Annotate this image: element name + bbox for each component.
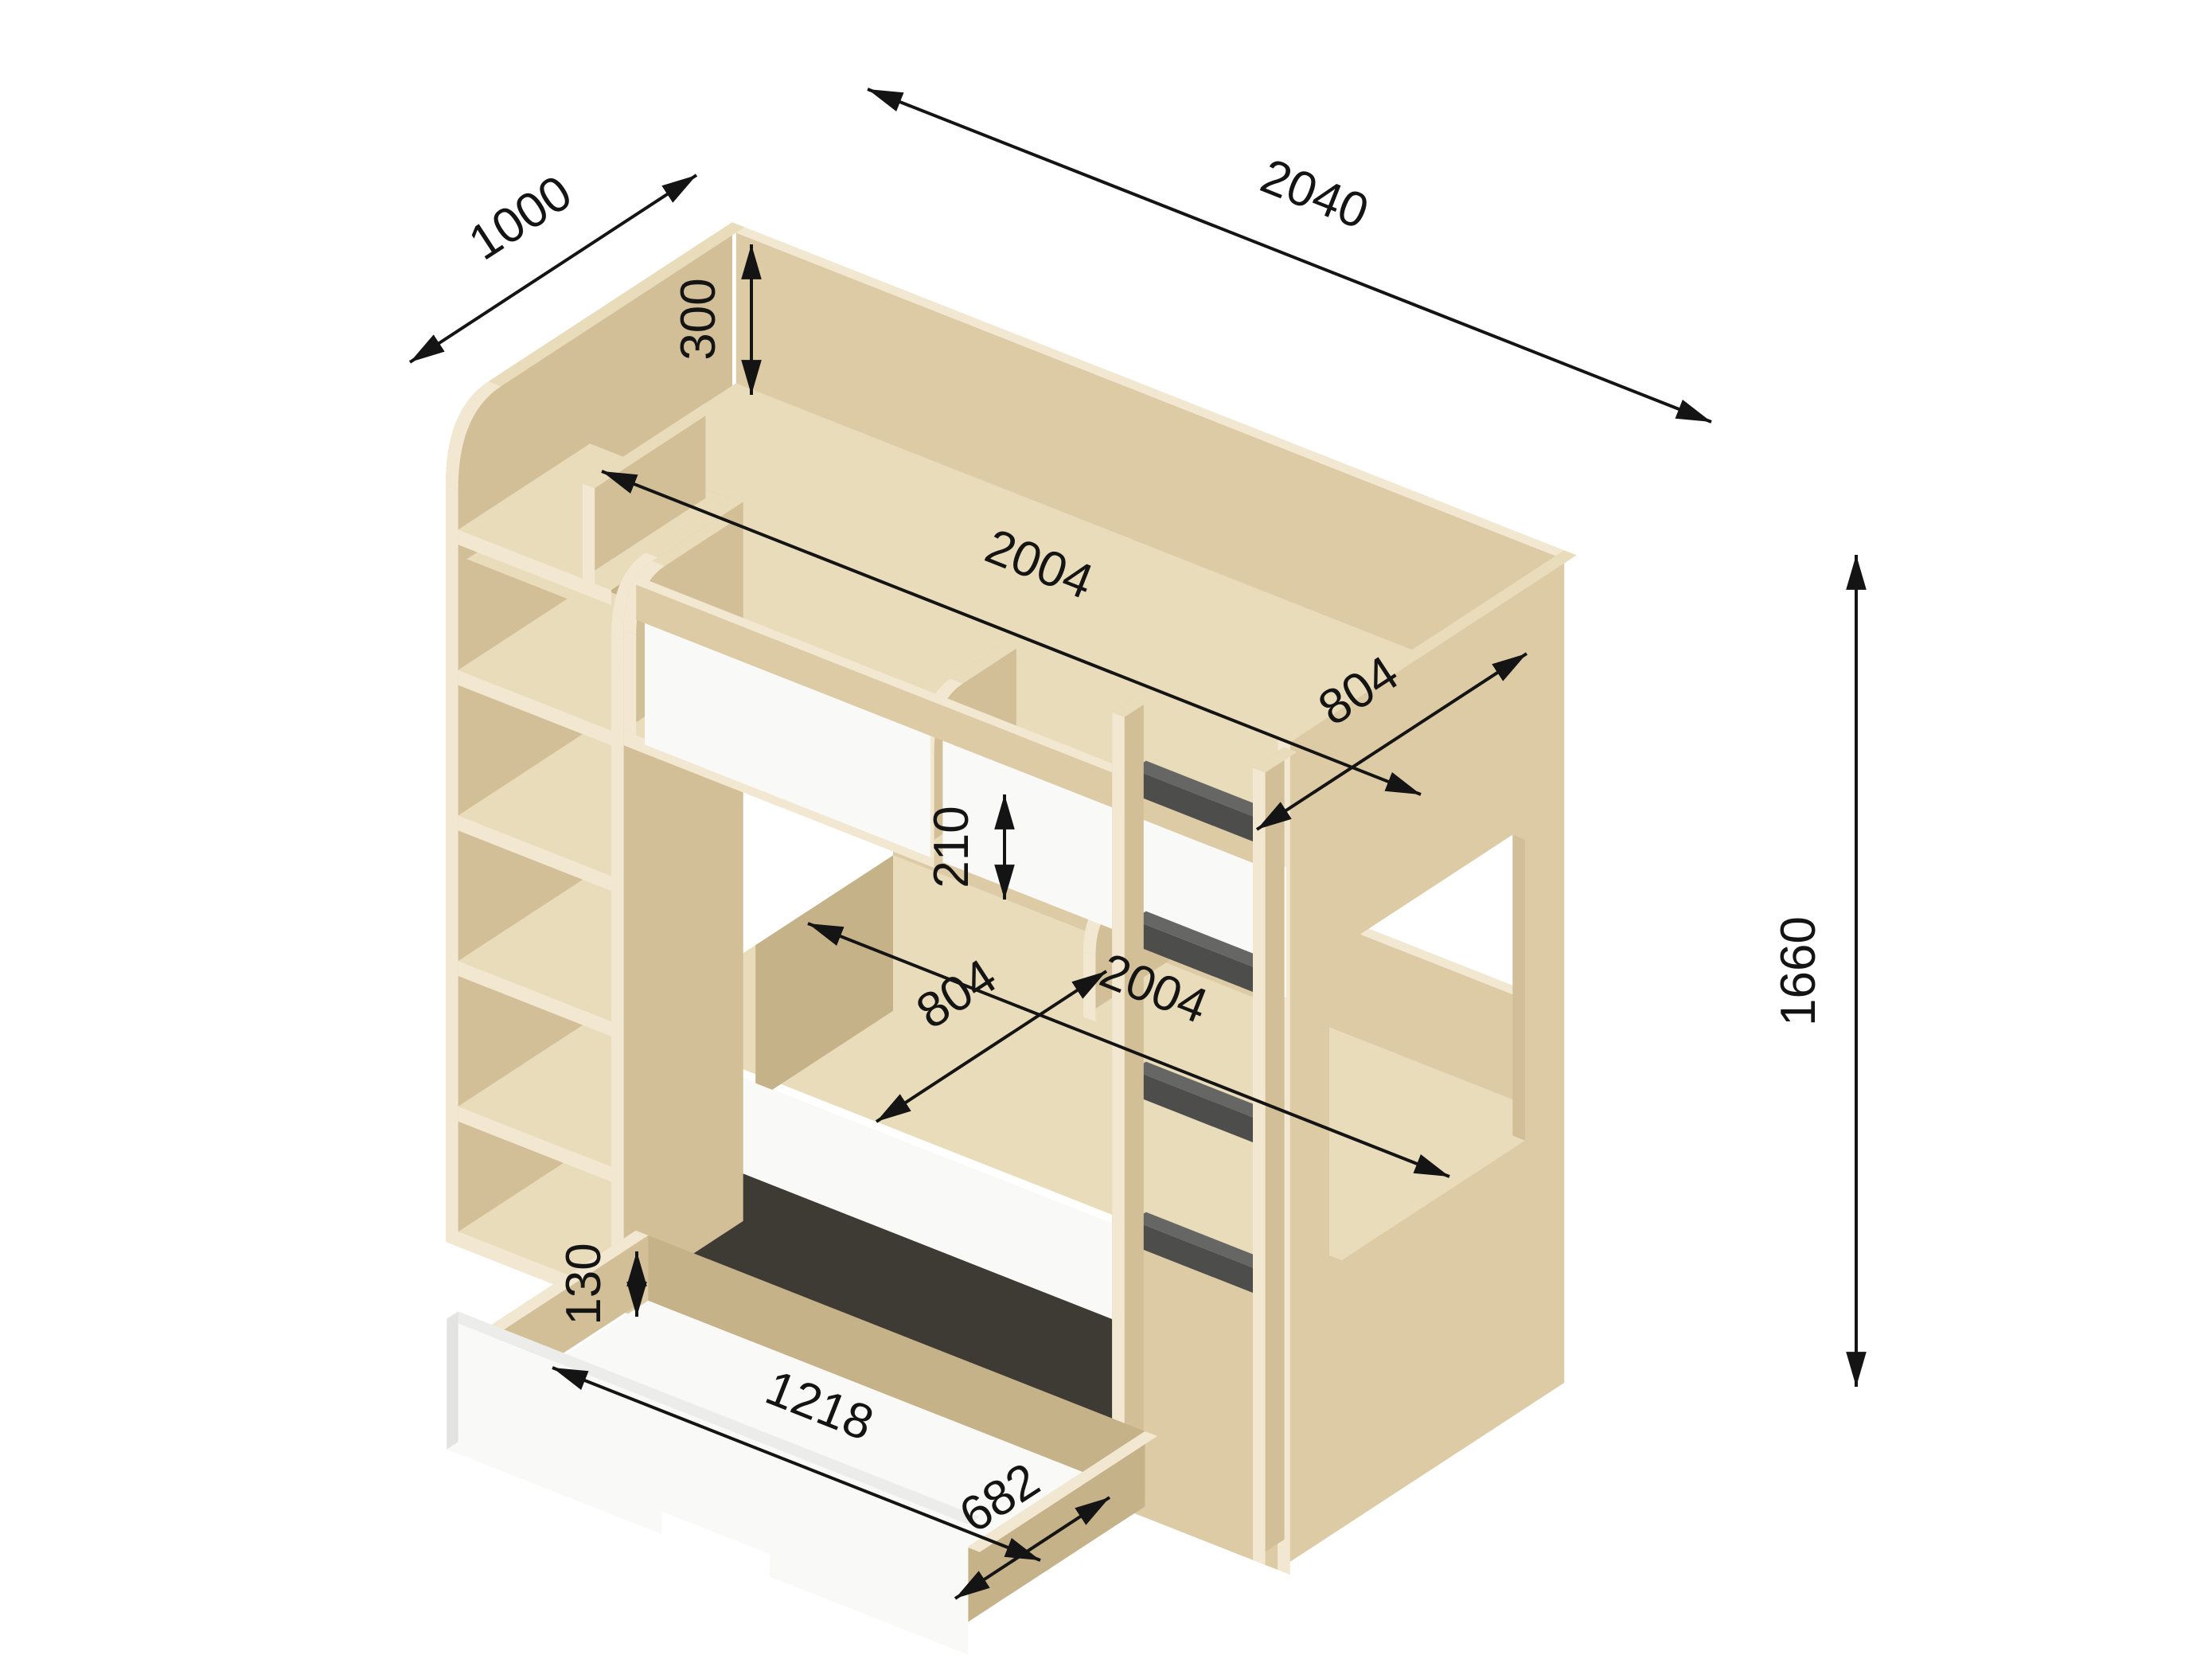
left-side-panel-face [446, 485, 458, 1247]
ladder-face [1112, 712, 1125, 1510]
ladder-face [1253, 767, 1266, 1565]
shelf-tower-face [583, 483, 595, 584]
furniture-dimension-diagram: 1000 2040 300 2004 804 1660 210 2004 804… [0, 0, 2212, 1659]
dim-label-lower-guard-height: 210 [924, 806, 979, 888]
shelf-tower-face [611, 635, 624, 1312]
underbed-drawer-face [447, 1311, 458, 1449]
right-end-panel-face [1512, 835, 1525, 1141]
bunk-bed-diagram-canvas: 1000 2040 300 2004 804 1660 210 2004 804… [0, 0, 2212, 1659]
headboard-shelf-face [624, 630, 637, 735]
dim-label-headboard-rail-height: 300 [671, 278, 726, 360]
dim-label-overall-height: 1660 [1771, 916, 1826, 1026]
dim-label-drawer-inner-height: 130 [556, 1243, 611, 1325]
